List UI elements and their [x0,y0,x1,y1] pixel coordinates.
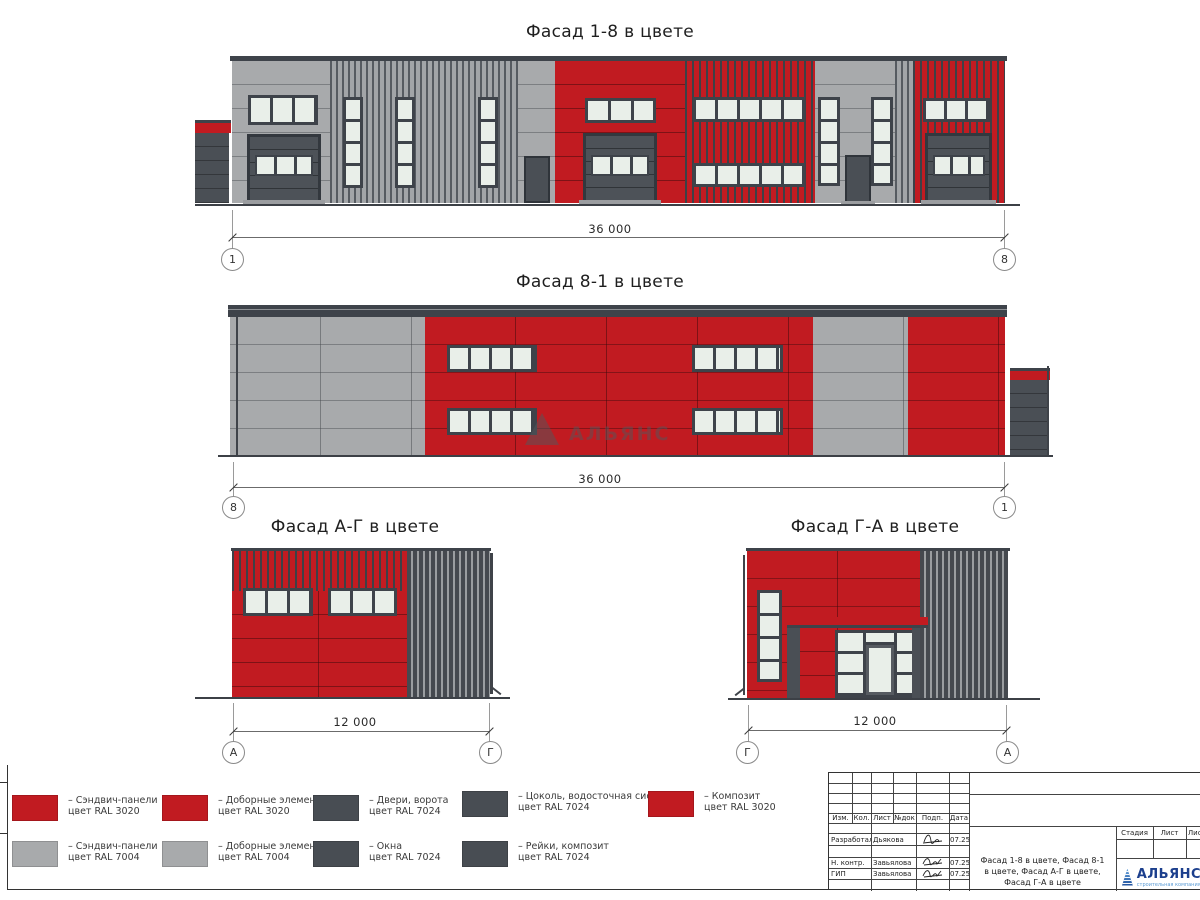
tb-line [829,845,969,846]
ribbon-window [692,345,783,372]
legend-label-line: цвет RAL 7024 [369,852,441,863]
legend-label-line: цвет RAL 7024 [518,852,609,863]
axis-bubble: А [222,741,245,764]
downspout [236,317,238,455]
annex-right [1010,368,1048,455]
tb-line [871,773,872,891]
ground-line [195,204,1020,206]
window [923,98,990,122]
facade-8-1-figure: Фасад 8-1 в цвете АЛЬЯНС 36 0 [195,270,1055,525]
tb-line [1116,839,1200,840]
legend-label-line: цвет RAL 7024 [369,806,449,817]
tb-col-header: Кол. [852,814,871,822]
drawing-sheet: Фасад 1-8 в цвете [0,0,1200,900]
dimension-line [233,731,490,732]
axis-bubble: 1 [221,248,244,271]
downspout-elbow [492,687,502,695]
company-logo-triangle-icon [1122,869,1133,886]
ground-line [195,697,510,699]
annex-left [195,120,229,203]
wall-red-battens [232,551,407,591]
ribbon-window [447,408,537,435]
document-title-line: Фасад 1-8 в цвете, Фасад 8-1 [971,855,1114,866]
tb-col-header: Дата [949,814,969,822]
garage-door-window [591,155,649,176]
tb-line [916,773,917,891]
window [328,588,397,616]
watermark: АЛЬЯНС [525,413,670,445]
facade-A-G-title: Фасад А-Г в цвете [195,517,515,537]
stage-label: Стадия [1116,829,1153,837]
tb-role: Разработал [831,836,871,844]
facade-8-1-title: Фасад 8-1 в цвете [195,272,1005,292]
tall-window [757,590,782,682]
downspout [490,553,493,694]
legend-label: – Сэндвич-панели цвет RAL 7004 [68,841,158,863]
legend-label-line: цвет RAL 7004 [68,852,158,863]
legend-label-line: – Окна [369,841,441,852]
facade-1-8-title: Фасад 1-8 в цвете [195,22,1025,42]
garage-door [925,133,992,203]
dimension-value: 36 000 [195,472,1005,486]
tb-col-header: Изм. [829,814,852,822]
entrance-side-window [838,633,863,695]
legend-swatch [12,795,58,821]
tb-line [1116,858,1200,859]
annex-wall [195,133,229,203]
frame-left-line [7,765,8,890]
wall-gray-panels [230,317,425,455]
signature [921,856,945,867]
dimension-value: 12 000 [195,715,515,729]
legend-label-line: – Сэндвич-панели [68,841,158,852]
tb-col-header: №док [893,814,916,822]
tb-line [829,833,969,834]
annex-wall [1010,380,1048,455]
tb-name: Завьялова [873,870,915,878]
company-logo: АЛЬЯНС строительная компания [1122,865,1200,889]
tall-window [871,97,893,186]
legend-swatch [648,791,694,817]
fascia-band [228,305,1007,317]
tb-date: 07.25 [950,870,969,878]
tb-col-header: Подп. [916,814,949,822]
dimension-line [233,487,1005,488]
watermark-text: АЛЬЯНС [569,423,670,445]
wall-gray-panels [813,317,908,455]
facade-A-G-figure: Фасад А-Г в цвете 12 000 А Г [195,515,515,777]
watermark-triangle-icon [525,413,559,445]
company-name-block: АЛЬЯНС строительная компания [1137,867,1200,888]
annex-red-band [195,123,231,133]
entrance-door [845,155,871,203]
document-title: Фасад 1-8 в цвете, Фасад 8-1 в цвете, Фа… [971,855,1114,888]
facade-1-8-figure: Фасад 1-8 в цвете [195,18,1025,280]
wall-dark-battens [920,551,1008,698]
tb-line [829,783,969,784]
legend-swatch [162,795,208,821]
garage-door-window [255,155,313,176]
tb-date: 07.25 [950,836,969,844]
legend-label: – Двери, ворота цвет RAL 7024 [369,795,449,817]
entrance-glazing [835,630,920,698]
wall-dark-battens [407,551,490,697]
legend-swatch [313,841,359,867]
legend-swatch [162,841,208,867]
tb-role: ГИП [831,870,871,878]
tall-window [478,97,498,188]
legend-label-line: – Сэндвич-панели [68,795,158,806]
entrance-canopy [787,617,928,628]
garage-door [583,133,657,203]
ribbon-window [447,345,537,372]
axis-bubble: Г [479,741,502,764]
tb-line [829,857,969,858]
fold-mark [0,782,7,783]
window [585,98,656,123]
legend-label-line: – Двери, ворота [369,795,449,806]
company-name: АЛЬЯНС [1137,867,1200,882]
legend-label-line: цвет RAL 3020 [68,806,158,817]
dimension-value: 36 000 [195,222,1025,236]
document-title-line: в цвете, Фасад А-Г в цвете, [971,866,1114,877]
axis-bubble: 8 [993,248,1016,271]
panel-seam [318,591,319,697]
tall-window [818,97,840,186]
door-transom [866,633,894,642]
tb-line [829,879,969,880]
legend-label: – Рейки, композит цвет RAL 7024 [518,841,609,863]
entrance-post [787,628,800,698]
entrance-door [524,156,550,203]
tb-line [829,803,969,804]
signature [921,868,945,879]
ribbon-window [692,408,783,435]
axis-bubble: Г [736,741,759,764]
downspout [1047,366,1049,455]
dimension-value: 12 000 [710,714,1040,728]
entrance-post [912,628,920,698]
legend-label: – Окна цвет RAL 7024 [369,841,441,863]
sheet-label: Лист [1153,829,1186,837]
legend-swatch [12,841,58,867]
title-block: Изм. Кол. Лист №док Подп. Дата Разработа… [828,772,1200,890]
tall-window [395,97,415,188]
facade-G-A-figure: Фасад Г-А в цвете 12 000 Г А [710,515,1040,777]
tb-line [829,868,969,869]
entrance-door-assembly [866,633,894,695]
tb-name: Дьякова [873,836,915,844]
tb-name: Завьялова [873,859,915,867]
sheets-label: Листов [1186,829,1200,837]
legend-label-line: – Композит [704,791,776,802]
tb-line [969,773,970,891]
dimension-line [748,730,1007,731]
legend-swatch [462,841,508,867]
fascia-groove [228,309,1007,310]
ground-line [218,455,1053,457]
wall-gray-battens [895,61,913,203]
tb-role: Н. контр. [831,859,871,867]
fold-mark [0,833,7,834]
wall-red-infill [800,628,835,698]
garage-door [247,134,321,203]
tb-line [829,793,969,794]
legend-swatch [313,795,359,821]
tb-line [969,794,1200,795]
legend-label-line: – Рейки, композит [518,841,609,852]
annex-red-band [1010,371,1050,380]
document-title-line: Фасад Г-А в цвете [971,877,1114,888]
tb-date: 07.25 [950,859,969,867]
glass-door [866,645,894,695]
signature [921,832,945,845]
ribbon-window [693,97,805,122]
window [248,95,318,125]
window [243,588,313,616]
ground-line [728,698,1040,700]
legend-label: – Сэндвич-панели цвет RAL 3020 [68,795,158,817]
dimension-line [232,237,1005,238]
garage-door-window [933,155,985,176]
ribbon-window [693,163,805,187]
downspout [743,555,745,695]
tall-window [343,97,363,188]
legend-label: – Композит цвет RAL 3020 [704,791,776,813]
tb-line [829,823,969,824]
legend-label-line: цвет RAL 3020 [704,802,776,813]
facade-G-A-title: Фасад Г-А в цвете [710,517,1040,537]
legend-swatch [462,791,508,817]
axis-bubble: А [996,741,1019,764]
company-subtitle: строительная компания [1137,882,1200,888]
tb-col-header: Лист [871,814,893,822]
tb-line [969,826,1200,827]
wall-red-panels [908,317,1005,455]
